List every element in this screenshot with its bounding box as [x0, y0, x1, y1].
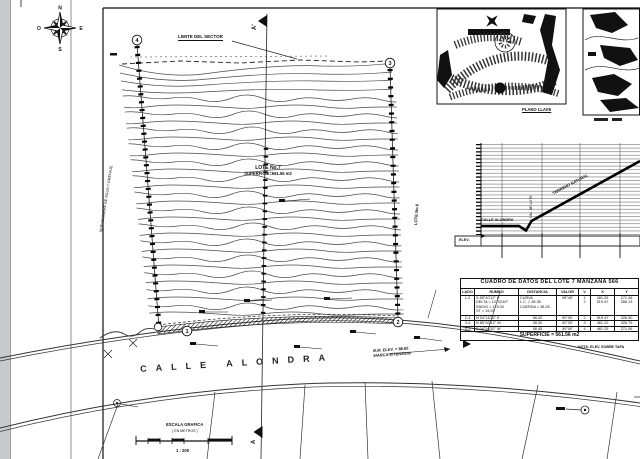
compass-east-label: E — [79, 26, 83, 32]
north-arrow-compass: N E S O — [37, 6, 83, 54]
scale-bar — [136, 436, 232, 445]
profile-axis-box-label: ELEV. — [459, 238, 470, 243]
lot7-area: SUPERFICIE=561.56 m2 — [223, 171, 313, 176]
col-distancia: DISTANCIA — [519, 289, 557, 296]
profile-calle-label: CALLE ALONDRA — [481, 218, 514, 223]
compass-north-label: N — [58, 6, 62, 12]
superficie-footer: SUPERFICIE = 561.56 m2 — [461, 332, 639, 341]
survey-sheet: N E S O — [0, 0, 640, 459]
table-note: NOTA: ELEV. SOBRE TAPA — [578, 345, 624, 349]
col-lado: LADO — [461, 289, 475, 296]
inset-localizacion — [583, 9, 640, 121]
frontage-hatch-strip — [158, 316, 398, 334]
point-markers — [114, 397, 640, 414]
escala-title: ESCALA GRAFICA — [166, 422, 203, 427]
lot7-label: LOTE No.7 SUPERFICIE=561.56 m2 — [223, 165, 313, 176]
datos-table: CUADRO DE DATOS DEL LOTE 7 MANZANA 566 L… — [460, 278, 639, 341]
section-top-label: A' — [252, 24, 259, 30]
plano-llave-caption: PLANO LLAVE — [522, 107, 551, 112]
escala-ratio: 1 : 200 — [176, 448, 189, 453]
escala-units: ( EN METROS ) — [172, 429, 198, 433]
compass-south-label: S — [58, 47, 62, 53]
survey-drawing: N E S O — [0, 0, 640, 459]
datos-table-wrap: CUADRO DE DATOS DEL LOTE 7 MANZANA 566 L… — [460, 278, 640, 341]
col-x: X — [591, 289, 615, 296]
vertex-3-label: 3 — [388, 61, 391, 67]
table-title: CUADRO DE DATOS DEL LOTE 7 MANZANA 566 — [461, 279, 639, 289]
vertex-2-label: 2 — [396, 320, 399, 326]
compass-west-label: O — [37, 26, 41, 32]
inset-plano-llave — [437, 9, 566, 104]
col-v: V — [579, 289, 591, 296]
profile-chart — [455, 143, 640, 258]
lot-boundary — [110, 41, 398, 328]
table-row: 1-2 S 85°40'12" E DELTA = 12°33'40" RADI… — [461, 296, 639, 316]
limite-sector-label: LIMITE DEL SECTOR — [178, 34, 223, 41]
section-line — [254, 14, 268, 459]
col-rumbo: RUMBO — [475, 289, 519, 296]
profile-limite-label: LIM. DE LOTE — [529, 195, 533, 218]
col-y: Y — [615, 289, 639, 296]
vertex-1-label: 1 — [185, 329, 188, 335]
section-bottom-label: A — [251, 440, 258, 444]
col-valor: VALOR — [557, 289, 579, 296]
